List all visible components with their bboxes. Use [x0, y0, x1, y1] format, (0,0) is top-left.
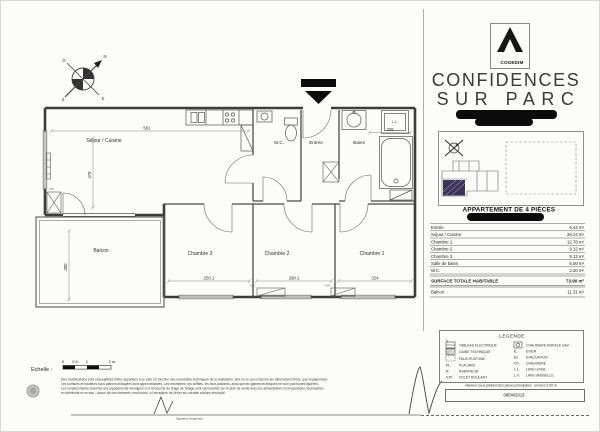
dim-sejour-height: 478 — [87, 171, 92, 179]
legend-frame — [439, 330, 584, 383]
area-row-label: Chambre 1 — [431, 239, 453, 244]
dim-balcon-height: 300 — [63, 263, 68, 271]
bathroom-fixtures — [342, 111, 413, 201]
redacted-bar — [475, 118, 533, 126]
exterior-walls — [45, 108, 415, 297]
area-row-label: W.C. — [431, 268, 440, 273]
balcony-area-label: Balcon — [431, 290, 445, 295]
signature-squiggle — [409, 367, 442, 414]
project-title-line1: CONFIDENCES — [425, 71, 587, 90]
disclaimer-line: en électricité et en eau ; aucun de ces … — [61, 391, 226, 395]
scale-tick: 1 — [86, 359, 89, 364]
dim-chambre1-width: 324 — [371, 276, 379, 281]
keyplan-frame — [438, 131, 584, 206]
dim-bains-width: 208 — [386, 127, 394, 132]
disclaimer-text: Des modifications sont susceptibles d'êt… — [61, 378, 328, 396]
room-label-balcon: Balcon — [93, 248, 109, 254]
room-label-entree: Entrée — [309, 140, 323, 145]
dim-chambre2-width: 298.1 — [289, 276, 300, 281]
vr-label-2: V.R. — [325, 284, 331, 288]
windows — [43, 131, 395, 299]
compass-north-label: N — [103, 54, 106, 59]
toilet-and-basin — [257, 111, 298, 141]
total-area-value: 73.90 m² — [566, 279, 585, 284]
cogedim-logo: COGEDIM — [490, 23, 530, 69]
room-label-wc: W.C. — [274, 140, 284, 145]
scale-ticks: 0 0.5 1 2 m — [62, 359, 116, 364]
scale-label: Echelle : — [31, 367, 53, 373]
room-label-chambre1: Chambre 1 — [360, 251, 385, 257]
area-row-value: 28.24 m² — [567, 232, 585, 237]
compass-east-label: E — [102, 96, 105, 101]
area-row-value: 6.44 m² — [569, 225, 584, 230]
vr-label-1: V.R. — [250, 284, 256, 288]
balcony-outline — [36, 217, 164, 307]
room-label-chambre2: Chambre 2 — [265, 251, 290, 257]
scale-tick: 2 m — [109, 359, 116, 364]
compass-rose: O N S E — [62, 54, 107, 102]
area-row-value: 2.20 m² — [569, 268, 584, 273]
shutter-labels: V.R. V.R. V.R. — [49, 187, 331, 288]
kitchen-counter — [186, 110, 253, 151]
area-row-value: 12.78 m² — [567, 239, 585, 244]
signature-caption: Signature acquéreur — [176, 417, 203, 421]
room-label-sejour: Séjour / Cuisine — [86, 138, 122, 144]
project-title-line2: SUR PARC — [425, 90, 587, 109]
area-row-value: 6.00 m² — [569, 261, 584, 266]
area-row-value: 9.12 m² — [569, 247, 584, 252]
logo-name: COGEDIM — [501, 60, 520, 65]
room-label-bains: Bains — [353, 140, 365, 145]
entrance-arrow-icon — [301, 79, 336, 104]
area-row-label: Entrée — [431, 225, 444, 230]
floor-plan-sheet: O N S E — [0, 0, 600, 432]
disclaimer-line: Les surfaces et hauteurs sous plafond in… — [61, 382, 319, 386]
area-row-label: Salle de bains — [431, 261, 458, 266]
dim-chambre3-width: 250.1 — [204, 276, 215, 281]
disclaimer-line: Les emplacements réservés aux équipement… — [61, 387, 324, 391]
balcony-area-value: 11.31 m² — [567, 290, 584, 295]
compass-south-label: S — [62, 97, 65, 102]
scale-tick: 0 — [62, 359, 65, 364]
cogedim-lambda-icon — [492, 24, 528, 54]
area-row-label: Chambre 3 — [431, 254, 453, 259]
certification-stamp-icon — [27, 385, 40, 398]
redacted-bar — [467, 213, 544, 221]
scale-bar — [63, 366, 111, 370]
date-frame — [445, 389, 585, 402]
scale-tick: 0.5 — [72, 359, 78, 364]
area-row-label: Chambre 2 — [431, 247, 453, 252]
initials-squiggle — [154, 397, 173, 414]
area-row-label: Séjour / Cuisine — [431, 232, 462, 237]
total-area-label: SURFACE TOTALE HABITABLE — [431, 279, 498, 284]
legend-note: Hauteur sous plafond des pièces principa… — [465, 384, 557, 388]
disclaimer-line: Des modifications sont susceptibles d'êt… — [61, 378, 328, 382]
vr-label-3: V.R. — [49, 187, 55, 191]
project-title: CONFIDENCES SUR PARC — [425, 71, 587, 109]
dimension-labels: 591 478 208 250.1 298.1 324 300 — [63, 126, 394, 281]
room-label-chambre3: Chambre 3 — [188, 251, 213, 257]
area-row-value: 9.12 m² — [569, 254, 584, 259]
washing-machine-label: L.L. — [392, 119, 399, 124]
room-labels: Séjour / Cuisine W.C. Entrée Bains Chamb… — [86, 138, 384, 257]
dimension-lines — [50, 129, 413, 301]
dim-sejour-width: 591 — [143, 126, 151, 131]
interior-walls — [164, 108, 415, 297]
compass-west-label: O — [62, 58, 66, 63]
